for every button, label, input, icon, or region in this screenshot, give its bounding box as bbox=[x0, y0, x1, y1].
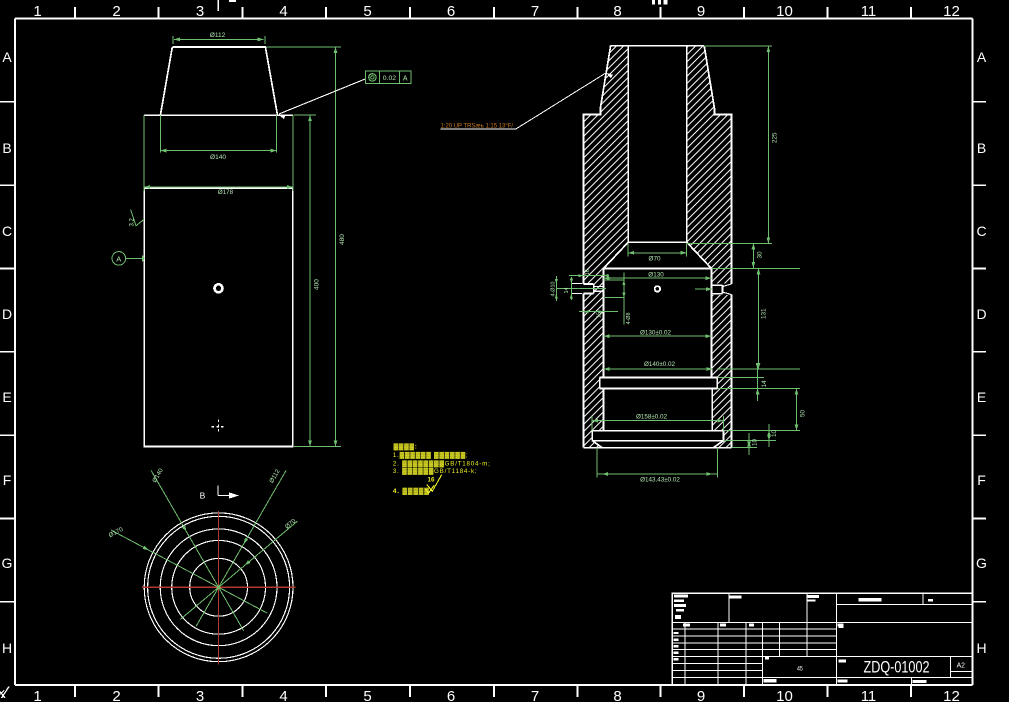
svg-text:Ø112: Ø112 bbox=[210, 32, 226, 39]
svg-text:G: G bbox=[976, 555, 987, 571]
svg-text:1.▓▓▓▓▓▓ ▓▓▓▓▓▓;: 1.▓▓▓▓▓▓ ▓▓▓▓▓▓; bbox=[393, 452, 469, 459]
svg-text:B: B bbox=[977, 140, 986, 156]
svg-text:3.2: 3.2 bbox=[130, 217, 136, 226]
svg-text:A: A bbox=[977, 49, 987, 65]
svg-text:F: F bbox=[3, 472, 12, 488]
svg-text:14: 14 bbox=[761, 380, 768, 388]
svg-text:16: 16 bbox=[428, 477, 435, 484]
svg-text:6: 6 bbox=[447, 3, 455, 20]
svg-text:2. ▓▓▓▓▓▓▓▓GB/T1804-m;: 2. ▓▓▓▓▓▓▓▓GB/T1804-m; bbox=[393, 460, 491, 467]
svg-text:0.02: 0.02 bbox=[383, 75, 396, 82]
svg-text:Ø158±0.02: Ø158±0.02 bbox=[636, 413, 668, 420]
svg-text:6: 6 bbox=[447, 688, 455, 702]
svg-text:B: B bbox=[200, 491, 206, 501]
svg-text:D: D bbox=[976, 306, 986, 322]
svg-text:3. ▓▓▓▓▓▓GB/T1184-k;: 3. ▓▓▓▓▓▓GB/T1184-k; bbox=[393, 468, 478, 475]
svg-text:A: A bbox=[116, 254, 121, 263]
svg-text:10: 10 bbox=[776, 3, 793, 20]
svg-text:Ø143.43±0.02: Ø143.43±0.02 bbox=[640, 477, 680, 484]
svg-text:10: 10 bbox=[752, 438, 759, 446]
svg-text:9: 9 bbox=[697, 3, 705, 20]
svg-text:45: 45 bbox=[797, 665, 803, 672]
svg-text:A2: A2 bbox=[957, 661, 965, 670]
svg-text:7: 7 bbox=[531, 688, 539, 702]
svg-text:4-Ø10: 4-Ø10 bbox=[551, 282, 557, 297]
svg-text:E: E bbox=[2, 389, 11, 405]
svg-text:7: 7 bbox=[531, 3, 539, 20]
svg-text:Ø178: Ø178 bbox=[218, 189, 234, 196]
svg-text:480: 480 bbox=[339, 234, 346, 245]
svg-text:H: H bbox=[976, 640, 986, 656]
svg-text:Ø140±0.02: Ø140±0.02 bbox=[644, 361, 676, 368]
svg-text:400: 400 bbox=[314, 279, 321, 290]
svg-text:10: 10 bbox=[771, 429, 778, 437]
svg-text:Ø130: Ø130 bbox=[648, 271, 664, 278]
svg-text:10: 10 bbox=[776, 688, 793, 702]
svg-text:12: 12 bbox=[943, 688, 960, 702]
svg-text:4: 4 bbox=[279, 688, 287, 702]
svg-text:2: 2 bbox=[112, 3, 120, 20]
svg-text:B: B bbox=[2, 140, 11, 156]
svg-text:4: 4 bbox=[279, 3, 287, 20]
svg-text:A: A bbox=[2, 49, 12, 65]
svg-text:9: 9 bbox=[697, 688, 705, 702]
svg-text:5: 5 bbox=[363, 688, 371, 702]
svg-text:1: 1 bbox=[33, 688, 41, 702]
svg-text:G: G bbox=[2, 555, 13, 571]
svg-text:C: C bbox=[2, 223, 12, 239]
svg-text:4-Ø8: 4-Ø8 bbox=[626, 313, 632, 325]
svg-text:3: 3 bbox=[196, 3, 204, 20]
svg-text:ZDQ-01002: ZDQ-01002 bbox=[864, 659, 930, 677]
svg-text:F: F bbox=[977, 472, 986, 488]
svg-text:30: 30 bbox=[757, 251, 764, 259]
svg-text:131: 131 bbox=[761, 308, 768, 319]
svg-text:11: 11 bbox=[861, 3, 877, 20]
svg-text:5: 5 bbox=[363, 3, 371, 20]
svg-text:▓▓▓▓:: ▓▓▓▓: bbox=[394, 444, 418, 451]
svg-text:H: H bbox=[2, 640, 12, 656]
svg-text:8: 8 bbox=[613, 3, 621, 20]
svg-text:2: 2 bbox=[112, 688, 120, 702]
svg-text:12: 12 bbox=[943, 3, 960, 20]
svg-text:8: 8 bbox=[613, 688, 621, 702]
svg-text:C: C bbox=[976, 223, 986, 239]
svg-text:Ø70: Ø70 bbox=[649, 256, 661, 263]
svg-text:225: 225 bbox=[772, 132, 779, 143]
svg-text:1: 1 bbox=[33, 3, 41, 20]
svg-text:3: 3 bbox=[196, 688, 204, 702]
svg-text:11: 11 bbox=[861, 688, 877, 702]
svg-text:A: A bbox=[403, 75, 408, 82]
svg-text:15: 15 bbox=[596, 312, 602, 318]
svg-text:14: 14 bbox=[564, 288, 570, 294]
svg-text:Ø140: Ø140 bbox=[210, 154, 226, 161]
svg-text:16: 16 bbox=[585, 269, 591, 275]
svg-text:D: D bbox=[2, 306, 12, 322]
svg-text:E: E bbox=[977, 389, 986, 405]
svg-text:4. ▓▓▓▓▓: 4. ▓▓▓▓▓ bbox=[393, 487, 430, 495]
svg-text:50: 50 bbox=[800, 409, 807, 417]
svg-text:Ø130±0.02: Ø130±0.02 bbox=[640, 330, 672, 337]
